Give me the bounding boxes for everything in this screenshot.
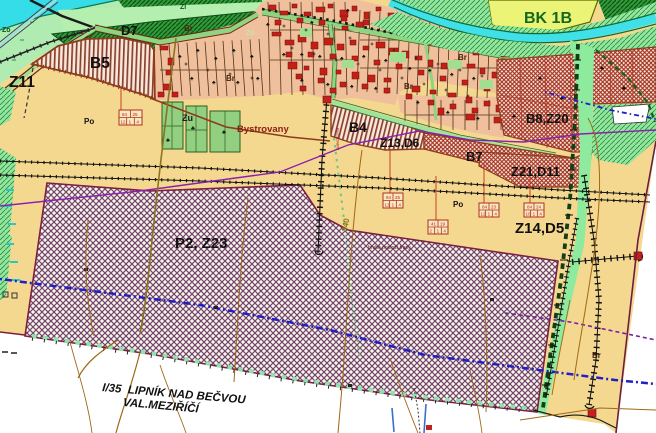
svg-text:♣: ♣ [300,52,304,58]
svg-text:P2, Z23: P2, Z23 [175,235,228,252]
svg-text:♣: ♣ [250,54,254,60]
svg-text:B5: B5 [90,55,110,72]
svg-text:♣: ♣ [512,114,516,120]
svg-text:♣: ♣ [236,80,240,86]
svg-text:12: 12 [121,120,127,125]
svg-text:♣: ♣ [622,86,626,92]
svg-text:♣: ♣ [256,76,260,82]
svg-text:♣: ♣ [600,66,604,72]
svg-text:♣: ♣ [416,100,420,106]
svg-text:24: 24 [536,205,542,210]
svg-text:♣: ♣ [232,48,236,54]
svg-text:♣: ♣ [266,22,270,28]
svg-text:10: 10 [526,212,532,217]
svg-text:Zo: Zo [2,27,11,34]
svg-text:♣: ♣ [476,116,480,122]
svg-text:25: 25 [133,112,139,117]
svg-text:♣: ♣ [350,84,354,90]
svg-text:Po: Po [453,200,463,209]
svg-text:B8,Z20: B8,Z20 [526,111,569,126]
svg-text:♣: ♣ [472,76,476,82]
svg-text:♣: ♣ [450,72,454,78]
svg-text:Zl: Zl [180,4,186,11]
svg-text:♣: ♣ [538,76,542,82]
svg-text:♣: ♣ [310,20,314,26]
svg-text:Br: Br [184,24,193,33]
svg-text:12: 12 [385,203,391,208]
svg-text:♣: ♣ [282,52,286,58]
svg-text:♣: ♣ [446,110,450,116]
svg-text:♣: ♣ [318,54,322,60]
svg-text:84: 84 [122,112,128,117]
svg-text:♣: ♣ [196,48,200,54]
svg-text:♣: ♣ [222,130,226,136]
svg-text:BK 1B: BK 1B [524,10,572,27]
svg-text:♣: ♣ [374,86,378,92]
svg-text:Br: Br [458,53,467,62]
svg-text:Z11: Z11 [9,74,35,91]
svg-text:♣: ♣ [346,8,350,14]
svg-text:84: 84 [386,195,392,200]
svg-text:Z13,D6: Z13,D6 [380,136,420,150]
svg-text:♣: ♣ [166,138,170,144]
svg-text:B4: B4 [349,119,367,135]
svg-text:♣: ♣ [191,126,195,132]
svg-text:84: 84 [527,205,533,210]
svg-text:12: 12 [481,212,487,217]
svg-text:25: 25 [395,195,401,200]
svg-text:Br: Br [404,82,413,91]
svg-text:♣: ♣ [190,76,194,82]
svg-text:84: 84 [482,205,488,210]
svg-text:Br: Br [226,74,235,83]
svg-text:♣: ♣ [362,54,366,60]
svg-text:♣: ♣ [408,66,412,72]
svg-text:♣: ♣ [326,82,330,88]
svg-text:Zo: Zo [246,30,255,37]
svg-text:Po: Po [84,117,94,126]
svg-text:D7: D7 [121,23,138,38]
svg-text:♣: ♣ [384,58,388,64]
svg-text:hrubé podloží trasy: hrubé podloží trasy [368,245,411,251]
svg-text:♣: ♣ [178,54,182,60]
svg-text:♣: ♣ [428,68,432,74]
svg-text:23: 23 [491,205,497,210]
svg-text:B7: B7 [466,149,483,164]
svg-text:Bystrovany: Bystrovany [237,124,289,135]
svg-text:♣: ♣ [212,80,216,86]
svg-text:Z21,D11: Z21,D11 [511,164,560,179]
svg-text:Z14,D5: Z14,D5 [515,220,564,237]
svg-text:♣: ♣ [214,56,218,62]
svg-text:19: 19 [440,222,446,227]
svg-text:Bystrovany: Bystrovany [335,128,341,151]
svg-text:♣: ♣ [300,78,304,84]
svg-text:41: 41 [431,222,437,227]
